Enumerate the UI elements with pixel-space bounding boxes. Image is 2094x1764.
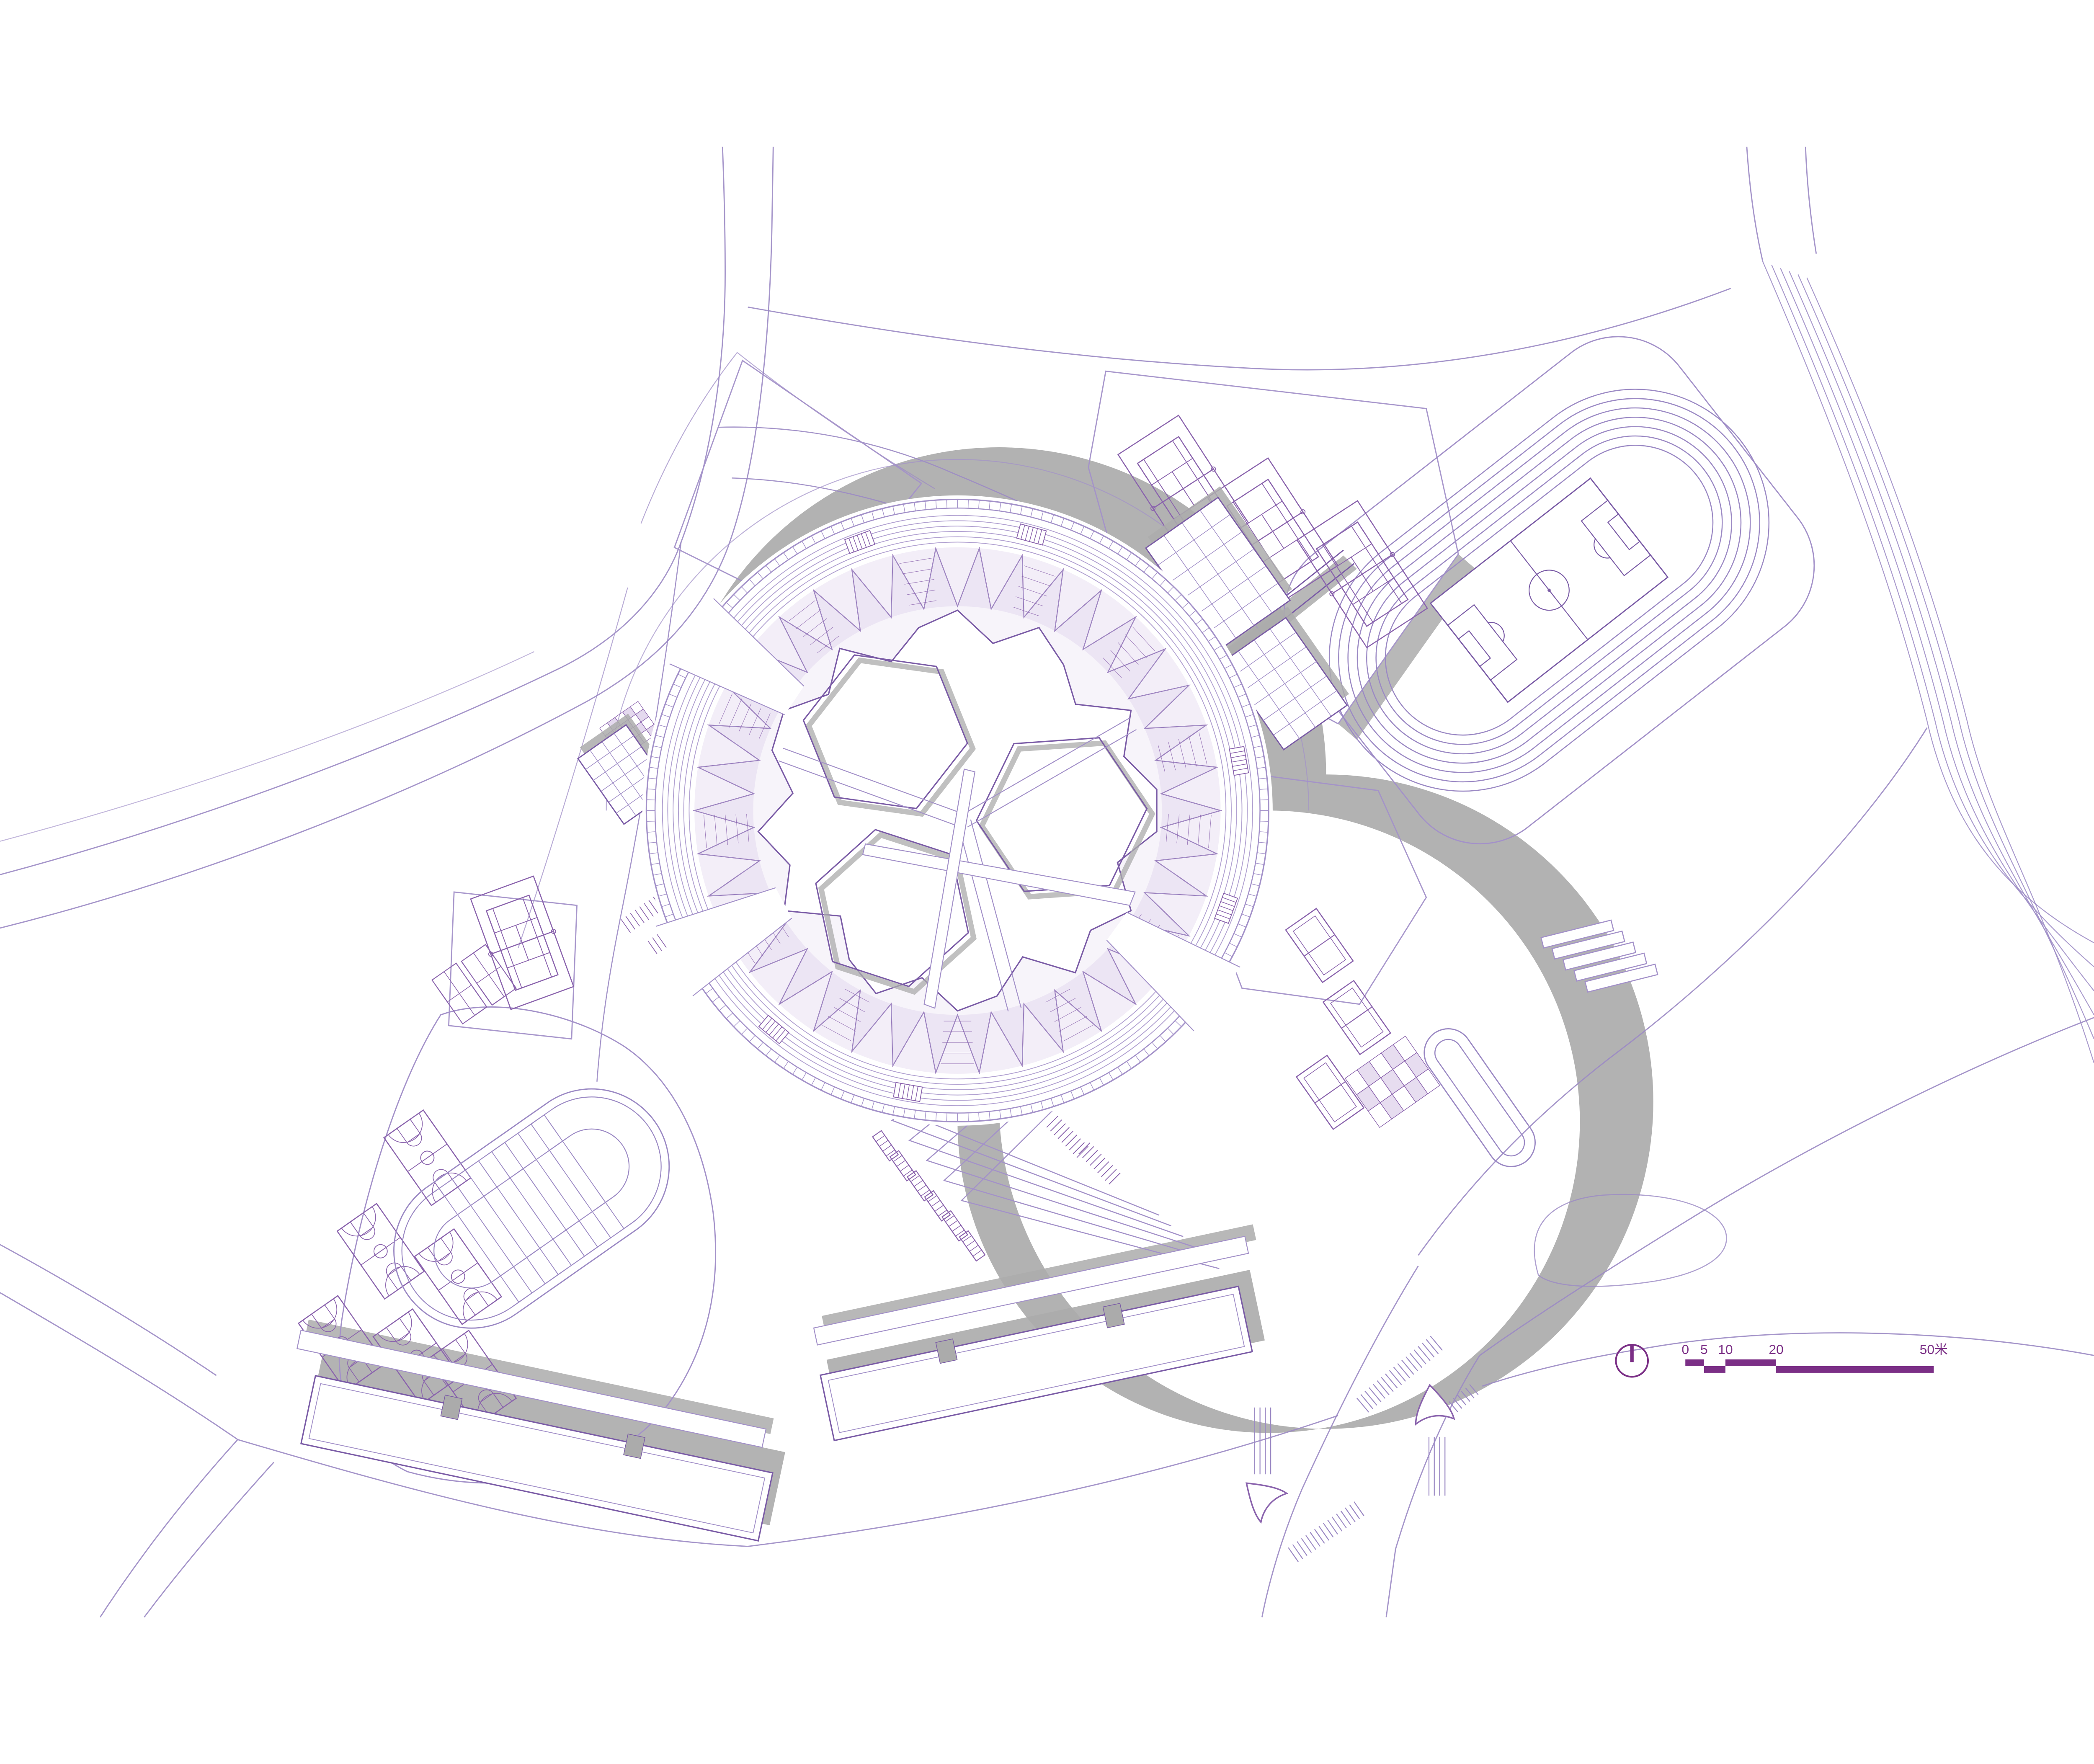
crosswalk-stripe bbox=[1414, 1350, 1426, 1364]
lane-rung bbox=[505, 1142, 584, 1256]
lane-rung bbox=[439, 1189, 519, 1302]
lane-rung bbox=[544, 1115, 624, 1229]
site-plan-drawing: 0 5 10 20 50米 bbox=[0, 0, 2094, 1764]
road-bundle-line bbox=[1789, 271, 2094, 1015]
road-line bbox=[100, 1439, 237, 1617]
crosswalk-stripe bbox=[1410, 1353, 1422, 1367]
lane-rung bbox=[452, 1179, 532, 1293]
road-line bbox=[641, 353, 738, 524]
road-intersection bbox=[1233, 1336, 1478, 1562]
crosswalk-stripe bbox=[1426, 1339, 1439, 1354]
crosswalk-stripe bbox=[1418, 1346, 1430, 1361]
facade-tick bbox=[968, 500, 969, 508]
crosswalk-stripe bbox=[1390, 1370, 1402, 1385]
key bbox=[465, 1292, 488, 1315]
crosswalk-stripe bbox=[1361, 1395, 1373, 1409]
road-bundle-line bbox=[1780, 268, 2094, 991]
site-plan-canvas: 0 5 10 20 50米 bbox=[0, 0, 2094, 1764]
scale-label-5: 5 bbox=[1700, 1342, 1708, 1357]
road-line bbox=[748, 289, 1731, 370]
crosswalk-stripe bbox=[1430, 1336, 1442, 1350]
terrace-pier-hatch bbox=[925, 1191, 950, 1221]
road-line bbox=[1262, 1266, 1418, 1617]
crosswalk bbox=[1288, 1501, 1364, 1562]
entrance-arrow bbox=[1233, 1469, 1287, 1522]
road-line bbox=[144, 1462, 273, 1617]
crosswalk-stripe bbox=[1402, 1360, 1414, 1375]
parking-stalls bbox=[1345, 1036, 1440, 1127]
parking-stall bbox=[1357, 1061, 1381, 1086]
sprint-track bbox=[364, 1058, 699, 1358]
key bbox=[435, 1173, 458, 1197]
terrace-pier-hatch bbox=[907, 1171, 933, 1201]
crosswalk-stripe bbox=[1393, 1367, 1405, 1381]
crosswalk-stripe bbox=[1373, 1384, 1385, 1398]
road-line bbox=[1805, 147, 1816, 254]
scale-bar: 0 5 10 20 50米 bbox=[1681, 1342, 1948, 1373]
crosswalk bbox=[1255, 1408, 1271, 1474]
road-line bbox=[1418, 728, 1927, 1256]
facade-tick bbox=[1260, 821, 1269, 822]
terrace-pier-hatch bbox=[873, 1131, 898, 1161]
scale-label-0: 0 bbox=[1681, 1342, 1689, 1357]
basketball-court bbox=[384, 1110, 471, 1206]
parking-stall bbox=[1381, 1044, 1405, 1069]
basketball-court bbox=[415, 1229, 501, 1324]
lane-rung bbox=[492, 1152, 571, 1266]
key bbox=[350, 1213, 373, 1236]
volleyball-court bbox=[1323, 980, 1390, 1055]
parking-stall bbox=[1356, 1086, 1380, 1111]
soccer-field bbox=[1431, 478, 1668, 702]
crosswalk-stripe bbox=[1377, 1381, 1389, 1395]
road-bundle-line bbox=[1798, 274, 2094, 1039]
lane-rung bbox=[479, 1161, 558, 1275]
crosswalk-stripe bbox=[1406, 1357, 1418, 1371]
drop-off-loop bbox=[1415, 1019, 1545, 1176]
crosswalk-stripe bbox=[1381, 1377, 1393, 1392]
terrace-pier-hatch bbox=[942, 1211, 967, 1241]
road-line bbox=[1747, 147, 1763, 262]
road-bundle-line bbox=[1763, 262, 2094, 943]
crosswalk-stripe bbox=[1369, 1387, 1381, 1402]
scale-label-10: 10 bbox=[1718, 1342, 1733, 1357]
scale-label-50m: 50米 bbox=[1920, 1342, 1948, 1357]
lane-rung bbox=[465, 1170, 545, 1284]
crosswalk bbox=[1429, 1437, 1445, 1496]
scale-label-20: 20 bbox=[1769, 1342, 1783, 1357]
parking-stall bbox=[1380, 1094, 1404, 1119]
parking-stall bbox=[1404, 1078, 1428, 1102]
circular-ring-building bbox=[642, 495, 1273, 1126]
lane-rung bbox=[531, 1124, 611, 1238]
facade-tick bbox=[968, 1113, 969, 1122]
north-arrow-icon bbox=[1616, 1345, 1648, 1377]
facade-tick bbox=[647, 799, 655, 800]
road-bundle-line bbox=[1772, 265, 2094, 967]
key bbox=[428, 1238, 451, 1261]
crosswalk-stripe bbox=[1365, 1391, 1377, 1405]
crosswalk-stripe bbox=[1357, 1398, 1369, 1412]
crosswalk-stripe bbox=[1385, 1374, 1398, 1388]
lane-rung bbox=[518, 1133, 598, 1247]
terrace-pier-hatch bbox=[890, 1151, 915, 1181]
facade-tick bbox=[647, 821, 655, 822]
volleyball-court bbox=[1297, 1055, 1364, 1130]
crosswalk-stripe bbox=[1398, 1364, 1410, 1378]
parking-stall bbox=[1381, 1069, 1404, 1094]
key bbox=[397, 1119, 420, 1143]
crosswalk-stripe bbox=[1422, 1343, 1434, 1357]
facade-tick bbox=[946, 500, 947, 508]
volleyball-court bbox=[1286, 908, 1353, 983]
facade-tick bbox=[1260, 799, 1269, 800]
facade-tick bbox=[946, 1113, 947, 1122]
road-line bbox=[1483, 1333, 2094, 1386]
road-line bbox=[0, 652, 534, 841]
